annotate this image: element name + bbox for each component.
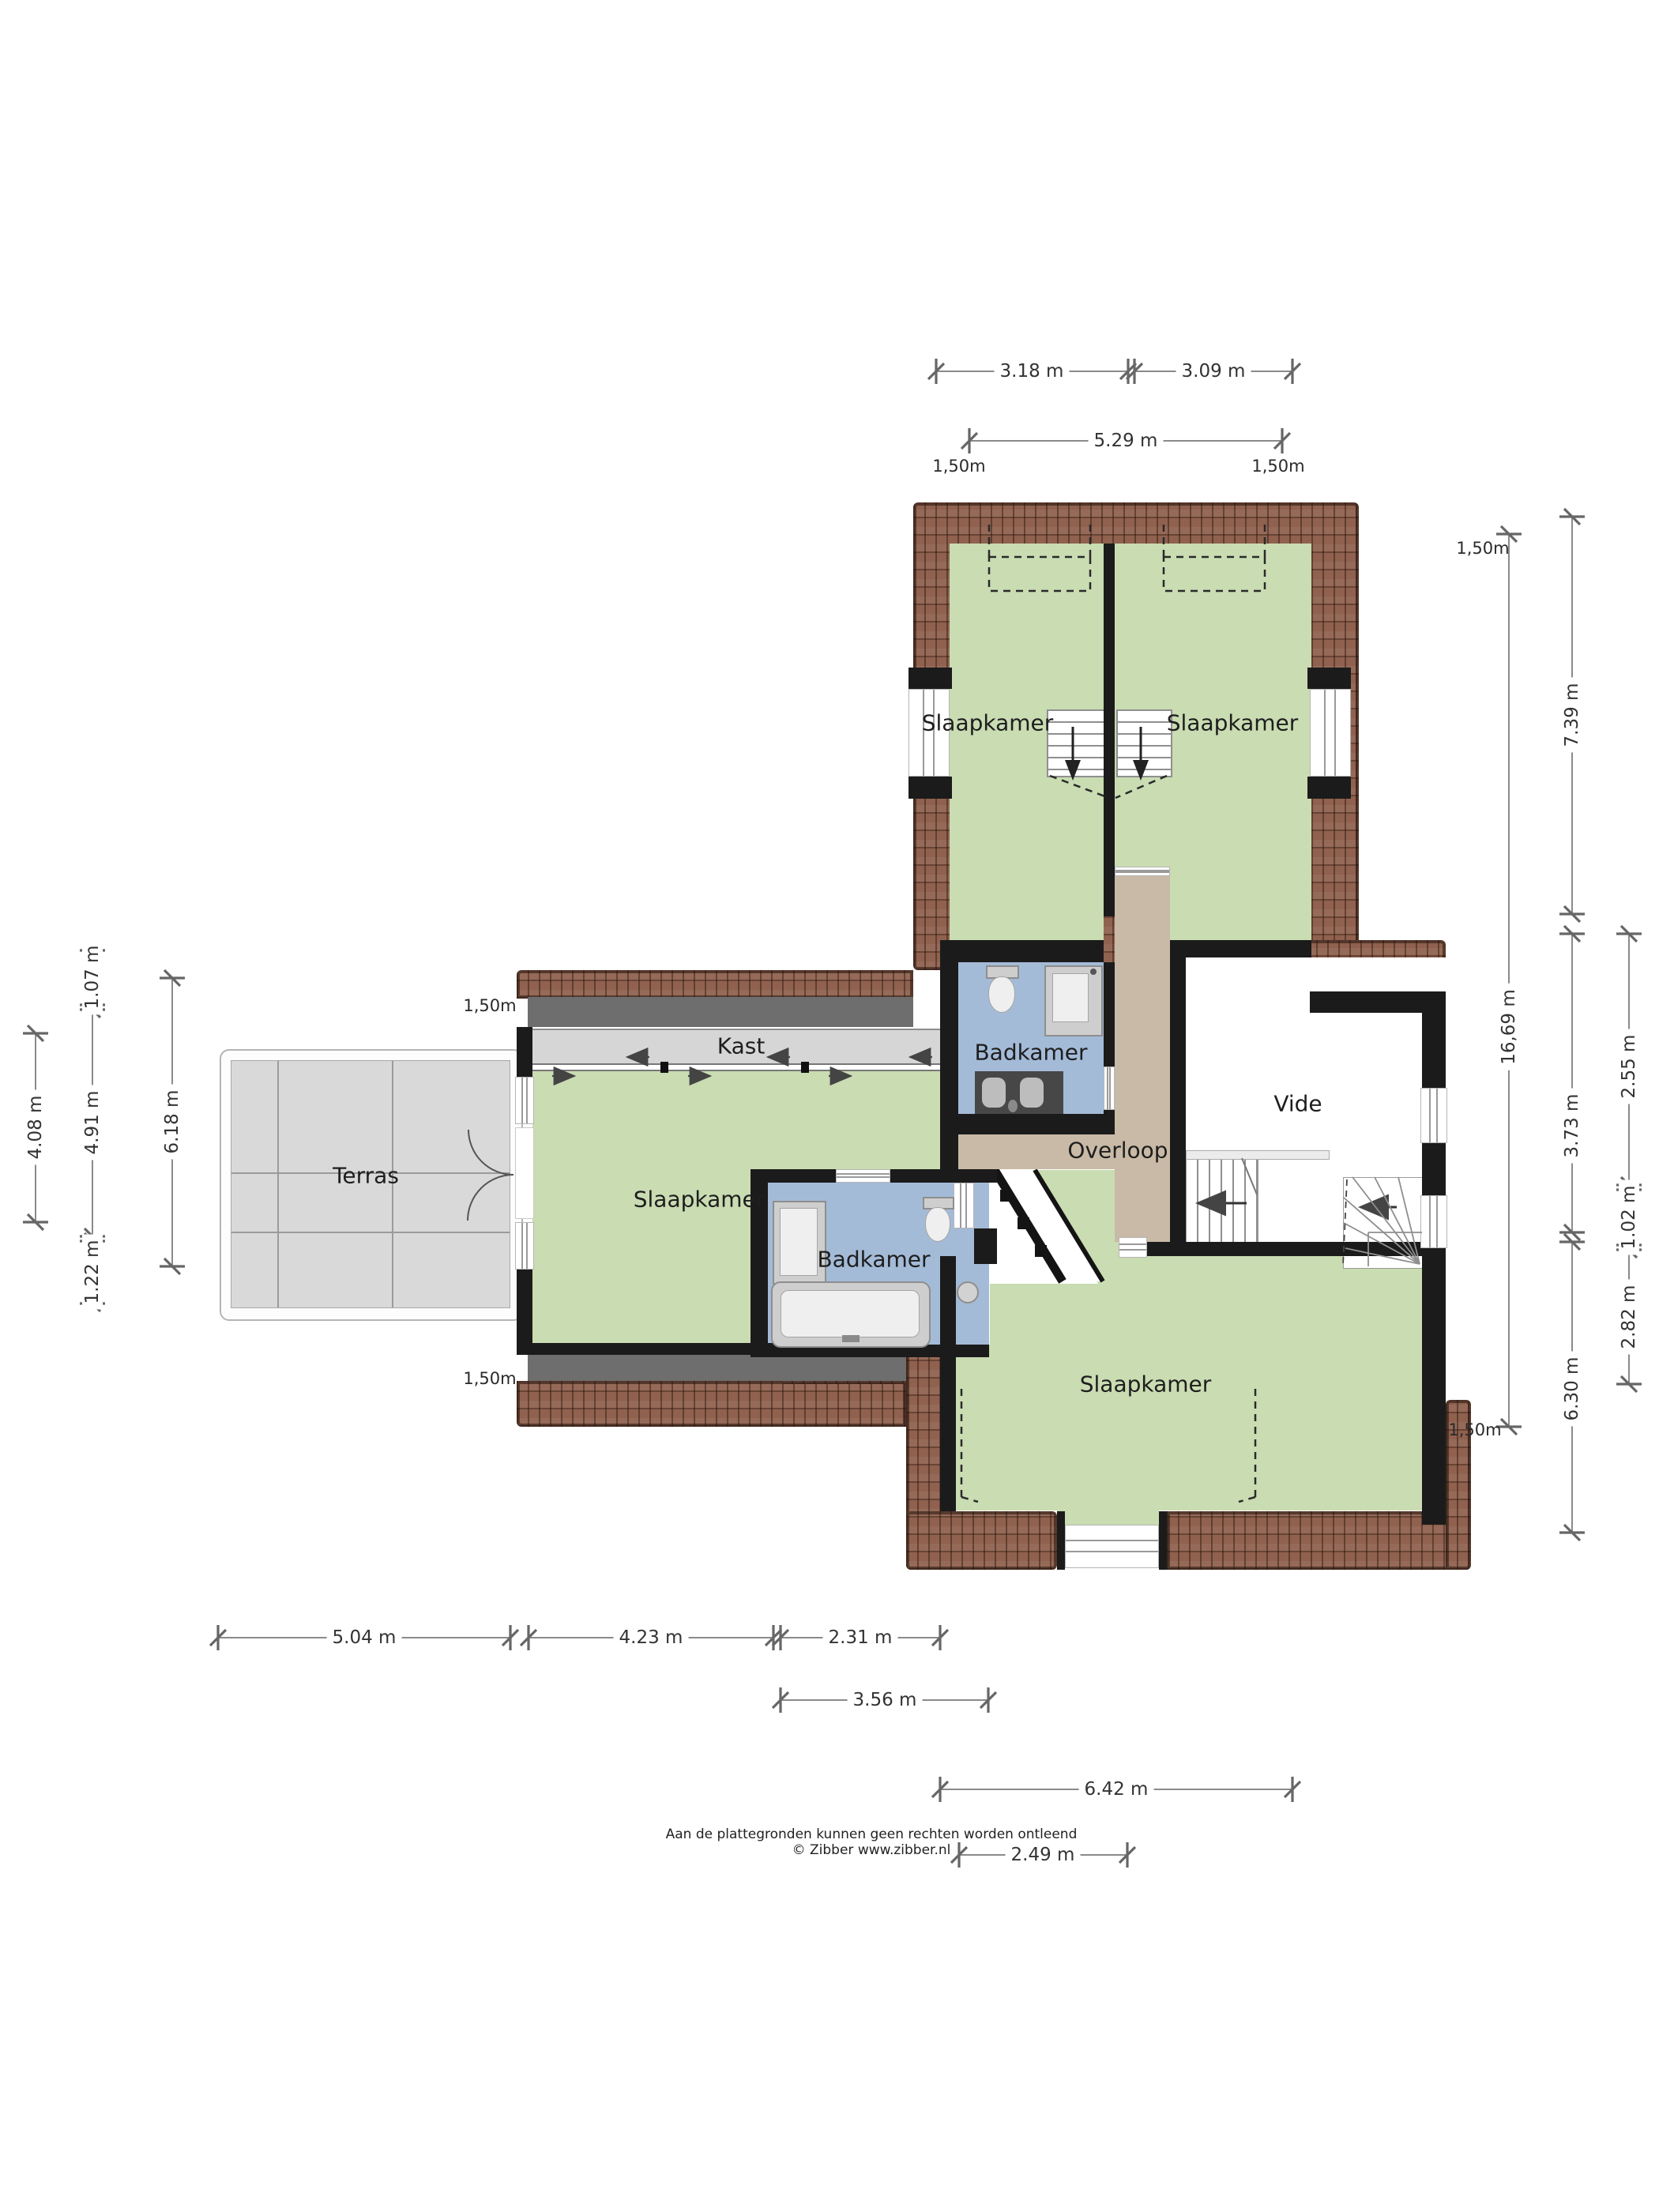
wall-center-top-wing bbox=[1104, 544, 1115, 916]
wall-east bbox=[1422, 1143, 1446, 1195]
dim-bottom-504: 5.04 m bbox=[327, 1627, 402, 1648]
window-west-a bbox=[515, 1077, 534, 1124]
room-label-overloop: Overloop bbox=[1067, 1138, 1168, 1164]
dim-left-107: 1.07 m bbox=[82, 940, 103, 1015]
dim-bottom-356: 3.56 m bbox=[848, 1690, 923, 1710]
wall-segment bbox=[1307, 777, 1351, 799]
vide-ledge bbox=[1186, 1150, 1330, 1160]
wall-vide-bottom bbox=[1147, 1242, 1422, 1256]
wall-badkamer-n-left bbox=[940, 962, 958, 1169]
window-jamb bbox=[1159, 1511, 1167, 1570]
room-label-badkamer-n: Badkamer bbox=[974, 1040, 1087, 1066]
headroom-mark: 1,50m bbox=[463, 996, 516, 1015]
staircase-north-right bbox=[1116, 709, 1172, 777]
flat-roof-edge-top bbox=[528, 997, 913, 1027]
dim-right-1669: 16,69 m bbox=[1499, 984, 1519, 1070]
faucet-icon bbox=[1008, 1100, 1018, 1112]
wall-segment bbox=[908, 777, 952, 799]
toilet-bowl-icon bbox=[925, 1207, 950, 1242]
roof-southwing-bottom-left bbox=[906, 1511, 1057, 1570]
window-jamb bbox=[1057, 1511, 1065, 1570]
staircase-vide bbox=[1186, 1158, 1258, 1243]
window-east-b bbox=[1420, 1195, 1447, 1248]
wall-segment bbox=[1307, 668, 1351, 689]
headroom-mark: 1,50m bbox=[1456, 539, 1509, 558]
sliding-door-stop bbox=[660, 1062, 668, 1073]
dim-top-2: 3.09 m bbox=[1176, 361, 1251, 382]
door-terras bbox=[515, 1127, 534, 1219]
headroom-mark: 1,50m bbox=[932, 457, 985, 476]
shower-tray-icon bbox=[1052, 973, 1089, 1022]
footer-credit: © Zibber www.zibber.nl bbox=[792, 1842, 951, 1858]
wall-vide-left bbox=[1170, 957, 1186, 1242]
room-label-terras: Terras bbox=[333, 1163, 399, 1189]
dim-right-282: 2.82 m bbox=[1619, 1280, 1639, 1355]
shower-tray-icon bbox=[780, 1208, 818, 1276]
dim-top-1: 3.18 m bbox=[995, 361, 1070, 382]
bath-faucet-icon bbox=[842, 1335, 860, 1342]
window-badkamer-s bbox=[836, 1169, 890, 1183]
room-label-badkamer-s: Badkamer bbox=[817, 1247, 930, 1273]
wall-east bbox=[1422, 1248, 1446, 1525]
room-label-slaapkamer-s: Slaapkamer bbox=[1080, 1371, 1212, 1398]
dim-right-102: 1.02 m bbox=[1619, 1180, 1639, 1255]
wall-east bbox=[1422, 991, 1446, 1088]
dim-bottom-423: 4.23 m bbox=[614, 1627, 689, 1648]
dim-right-255: 2.55 m bbox=[1619, 1029, 1639, 1104]
window-topwing-right bbox=[1310, 689, 1351, 777]
dim-left-122: 1.22 m bbox=[82, 1235, 103, 1310]
floor-plan: Slaapkamer Slaapkamer Slaapkamer Slaapka… bbox=[0, 0, 1659, 2212]
dim-bottom-231: 2.31 m bbox=[823, 1627, 898, 1648]
room-label-slaapkamer-w: Slaapkamer bbox=[634, 1187, 766, 1213]
sliding-door-stop bbox=[801, 1062, 809, 1073]
window-west-b bbox=[515, 1222, 534, 1270]
room-label-kast: Kast bbox=[717, 1033, 766, 1059]
overloop-top-frame bbox=[1115, 867, 1170, 876]
wall-segment bbox=[940, 940, 1104, 962]
washbasin-icon bbox=[982, 1078, 1006, 1108]
wall-badkamer-n-right bbox=[1104, 962, 1115, 1066]
dim-left-408: 4.08 m bbox=[25, 1090, 46, 1165]
wall-segment bbox=[974, 1228, 997, 1264]
wall-segment bbox=[1170, 940, 1311, 957]
dim-right-739: 7.39 m bbox=[1562, 678, 1582, 753]
footer-disclaimer: Aan de plattegronden kunnen geen rechten… bbox=[666, 1826, 1078, 1842]
headroom-mark: 1,50m bbox=[1448, 1420, 1501, 1439]
dim-right-630: 6.30 m bbox=[1562, 1352, 1582, 1427]
wall-west bbox=[517, 1270, 532, 1345]
headroom-mark: 1,50m bbox=[463, 1369, 516, 1388]
bathtub-inner-icon bbox=[781, 1290, 920, 1337]
dim-bottom-249: 2.49 m bbox=[1006, 1845, 1081, 1865]
dim-bottom-642: 6.42 m bbox=[1079, 1779, 1154, 1800]
staircase-north-left bbox=[1047, 709, 1105, 777]
wall-segment bbox=[908, 668, 952, 689]
room-overloop-vertical bbox=[1115, 873, 1170, 1242]
wall-badkamer-n-bottom bbox=[940, 1114, 1115, 1134]
door-overloop bbox=[1119, 1237, 1147, 1258]
roof-main-bottomleft bbox=[517, 1381, 906, 1427]
roof-main-topleft bbox=[517, 970, 913, 999]
room-label-slaapkamer-ne: Slaapkamer bbox=[1167, 710, 1299, 736]
toilet-bowl-icon bbox=[988, 976, 1015, 1013]
wall-west bbox=[517, 1027, 532, 1077]
window-east-a bbox=[1420, 1088, 1447, 1143]
floor-plan-layer bbox=[0, 0, 1659, 2212]
room-label-slaapkamer-nw: Slaapkamer bbox=[922, 710, 1054, 736]
dim-top-3: 5.29 m bbox=[1089, 431, 1164, 451]
dim-right-373: 3.73 m bbox=[1562, 1089, 1582, 1164]
dim-left-491: 4.91 m bbox=[82, 1085, 103, 1161]
washbasin-icon bbox=[1020, 1078, 1044, 1108]
door-badkamer-s bbox=[954, 1183, 974, 1228]
closet-sliding-track bbox=[531, 1063, 952, 1071]
dim-left-618: 6.18 m bbox=[162, 1085, 182, 1160]
wall-southwest bbox=[517, 1343, 781, 1355]
sink-icon bbox=[957, 1281, 979, 1303]
shower-head-icon bbox=[1090, 969, 1097, 975]
room-label-vide: Vide bbox=[1273, 1091, 1322, 1117]
headroom-mark: 1,50m bbox=[1251, 457, 1304, 476]
door-badkamer-n bbox=[1104, 1066, 1115, 1110]
flat-roof-edge-bottom bbox=[528, 1355, 906, 1381]
wall-southwing-left bbox=[940, 1256, 956, 1511]
window-south bbox=[1065, 1525, 1159, 1568]
